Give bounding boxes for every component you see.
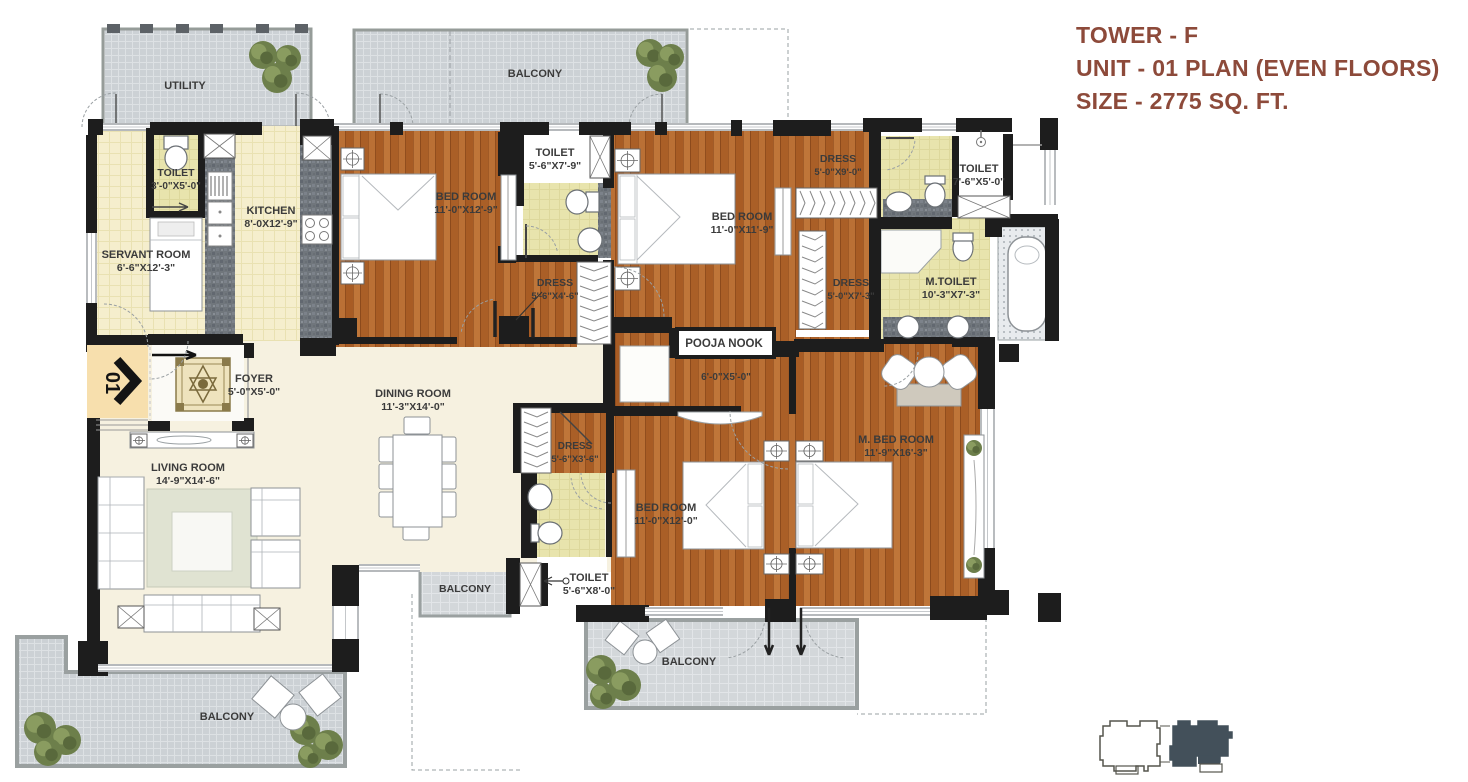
- svg-text:SIZE - 2775 SQ. FT.: SIZE - 2775 SQ. FT.: [1076, 88, 1289, 114]
- svg-text:KITCHEN: KITCHEN: [247, 205, 296, 217]
- svg-text:5'-0"X5'-0": 5'-0"X5'-0": [228, 386, 280, 398]
- svg-text:11'-0"X11'-9": 11'-0"X11'-9": [711, 224, 774, 236]
- svg-text:TOILET: TOILET: [536, 147, 575, 159]
- svg-text:DINING ROOM: DINING ROOM: [375, 388, 451, 400]
- svg-text:11'-0"X12'-0": 11'-0"X12'-0": [634, 515, 697, 527]
- svg-text:UTILITY: UTILITY: [164, 80, 206, 92]
- svg-text:TOILET: TOILET: [570, 572, 609, 584]
- svg-text:POOJA NOOK: POOJA NOOK: [685, 338, 763, 350]
- svg-text:UNIT - 01 PLAN (EVEN FLOORS): UNIT - 01 PLAN (EVEN FLOORS): [1076, 55, 1440, 81]
- svg-text:3'-0"X5'-0": 3'-0"X5'-0": [151, 181, 201, 192]
- svg-text:DRESS: DRESS: [833, 277, 869, 289]
- svg-text:M. BED ROOM: M. BED ROOM: [858, 434, 934, 446]
- svg-text:14'-9"X14'-6": 14'-9"X14'-6": [156, 475, 220, 487]
- svg-text:M.TOILET: M.TOILET: [925, 276, 976, 288]
- svg-text:SERVANT ROOM: SERVANT ROOM: [102, 249, 191, 261]
- svg-text:BALCONY: BALCONY: [508, 68, 563, 80]
- svg-text:TOWER - F: TOWER - F: [1076, 22, 1198, 48]
- svg-text:DRESS: DRESS: [820, 153, 856, 165]
- svg-text:TOILET: TOILET: [157, 167, 195, 179]
- svg-text:BALCONY: BALCONY: [662, 656, 717, 668]
- svg-text:6'-0"X5'-0": 6'-0"X5'-0": [701, 372, 751, 383]
- svg-text:10'-3"X7'-3": 10'-3"X7'-3": [922, 289, 980, 301]
- svg-text:5'-6"X7'-9": 5'-6"X7'-9": [529, 160, 581, 172]
- svg-text:BED ROOM: BED ROOM: [436, 191, 497, 203]
- svg-text:6'-6"X12'-3": 6'-6"X12'-3": [117, 262, 175, 274]
- svg-text:11'-9"X16'-3": 11'-9"X16'-3": [864, 447, 927, 459]
- svg-text:BALCONY: BALCONY: [200, 711, 255, 723]
- svg-text:TOILET: TOILET: [960, 163, 999, 175]
- svg-text:5'-6"X8'-0": 5'-6"X8'-0": [563, 585, 615, 597]
- svg-text:DRESS: DRESS: [537, 277, 573, 289]
- svg-text:BED ROOM: BED ROOM: [636, 502, 697, 514]
- svg-text:DRESS: DRESS: [558, 441, 593, 452]
- svg-text:8'-0X12'-9": 8'-0X12'-9": [244, 218, 297, 230]
- svg-text:LIVING ROOM: LIVING ROOM: [151, 462, 225, 474]
- svg-text:FOYER: FOYER: [235, 373, 273, 385]
- svg-text:5'-0"X7'-3": 5'-0"X7'-3": [827, 291, 874, 302]
- svg-text:BALCONY: BALCONY: [439, 583, 491, 595]
- svg-text:11'-3"X14'-0": 11'-3"X14'-0": [381, 401, 444, 413]
- svg-text:11'-0"X12'-9": 11'-0"X12'-9": [434, 204, 497, 216]
- svg-text:7'-6"X5'-0": 7'-6"X5'-0": [953, 176, 1005, 188]
- svg-text:BED ROOM: BED ROOM: [712, 211, 773, 223]
- svg-text:01: 01: [101, 372, 123, 394]
- svg-text:5'-0"X9'-0": 5'-0"X9'-0": [814, 167, 861, 178]
- svg-text:5'-6"X3'-6": 5'-6"X3'-6": [551, 454, 598, 465]
